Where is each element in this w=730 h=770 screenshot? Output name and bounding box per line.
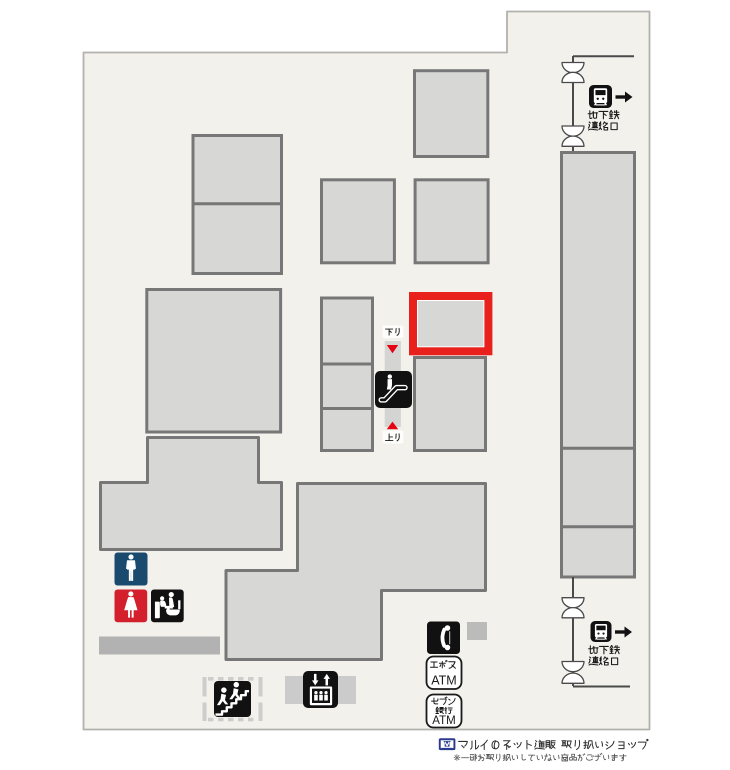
svg-text:ATM: ATM [431,674,456,688]
svg-text:ATM: ATM [432,715,455,727]
